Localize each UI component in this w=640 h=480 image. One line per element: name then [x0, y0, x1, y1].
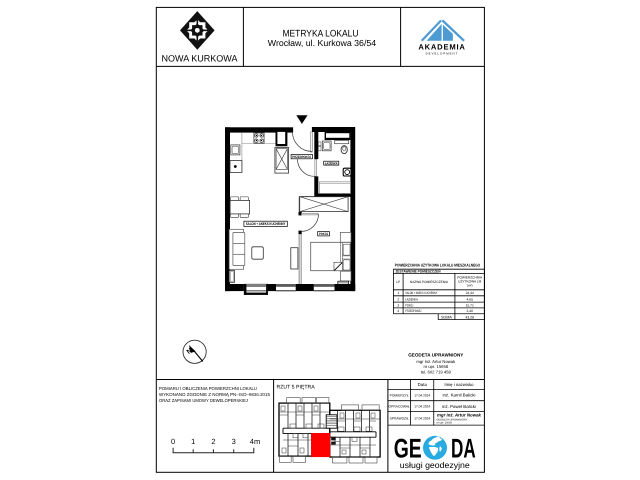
svg-text:inż. Paweł Balicki: inż. Paweł Balicki	[442, 404, 476, 409]
svg-text:nr upr. 15658: nr upr. 15658	[437, 422, 453, 425]
svg-text:tel. 602 719 458: tel. 602 719 458	[421, 369, 452, 374]
svg-text:17.04.2024: 17.04.2024	[414, 417, 430, 421]
svg-text:OPRACOWAŁ: OPRACOWAŁ	[389, 405, 410, 409]
svg-text:SALON + ANEKS KUCHENNY: SALON + ANEKS KUCHENNY	[405, 291, 438, 295]
svg-text:3,48: 3,48	[466, 309, 473, 313]
svg-text:10,71: 10,71	[466, 303, 474, 307]
svg-text:ŁAZIENKA: ŁAZIENKA	[325, 161, 338, 165]
svg-text:4: 4	[397, 309, 399, 313]
svg-text:NAZWA POMIESZCZENIA: NAZWA POMIESZCZENIA	[410, 280, 449, 284]
svg-text:POKÓJ: POKÓJ	[405, 303, 413, 307]
svg-text:DA: DA	[451, 434, 476, 464]
svg-text:RZUT 5 PIĘTRA: RZUT 5 PIĘTRA	[277, 384, 316, 390]
svg-text:2: 2	[397, 297, 399, 301]
svg-text:SALON + ANEKS KUCHENNY: SALON + ANEKS KUCHENNY	[246, 222, 286, 226]
svg-text:SUMA: SUMA	[441, 315, 452, 319]
svg-text:POMIERZYŁ: POMIERZYŁ	[390, 393, 409, 397]
svg-text:43,28: 43,28	[465, 315, 474, 319]
svg-text:GEODETA UPRAWNIONY: GEODETA UPRAWNIONY	[408, 352, 463, 357]
svg-text:NOWA KURKOWA: NOWA KURKOWA	[162, 54, 239, 64]
svg-text:POKÓJ: POKÓJ	[319, 232, 328, 236]
svg-text:4,65: 4,65	[466, 297, 473, 301]
svg-text:POMIARU I OBLICZENIA POWIERZCH: POMIARU I OBLICZENIA POWIERZCHNI LOKALU	[159, 386, 257, 391]
svg-text:inż. Kamil Balicki: inż. Kamil Balicki	[443, 393, 476, 398]
svg-text:mgr inż. Artur Nowak: mgr inż. Artur Nowak	[437, 413, 482, 418]
svg-text:SPRAWDZIŁ: SPRAWDZIŁ	[390, 417, 409, 421]
svg-text:24,44: 24,44	[466, 291, 474, 295]
svg-text:3: 3	[232, 437, 236, 446]
svg-text:Data: Data	[418, 382, 428, 387]
svg-text:1: 1	[191, 437, 195, 446]
svg-text:POWIERZCHNIA UŻYTKOWA LOKALU M: POWIERZCHNIA UŻYTKOWA LOKALU MIESZKALNEG…	[395, 263, 481, 268]
svg-text:GE: GE	[394, 434, 422, 464]
svg-text:17.04.2024: 17.04.2024	[414, 405, 430, 409]
svg-text:2: 2	[211, 437, 215, 446]
svg-text:(m²): (m²)	[467, 284, 473, 288]
svg-text:usługi geodezyjne: usługi geodezyjne	[400, 460, 470, 470]
svg-text:1: 1	[397, 291, 399, 295]
svg-text:ŁAZIENKA: ŁAZIENKA	[405, 297, 418, 301]
svg-text:0: 0	[171, 437, 175, 446]
svg-text:PRZEDPOKÓJ: PRZEDPOKÓJ	[405, 309, 421, 313]
svg-text:WYKONANO ZGODNIE Z NORMĄ PN–IS: WYKONANO ZGODNIE Z NORMĄ PN–ISO–9836:201…	[159, 392, 271, 397]
svg-text:ZESTAWIENIE POMIESZCZEŃ: ZESTAWIENIE POMIESZCZEŃ	[396, 269, 442, 273]
svg-text:DEVELOPMENT: DEVELOPMENT	[426, 52, 459, 56]
svg-text:LP: LP	[396, 280, 400, 284]
svg-text:3: 3	[397, 303, 399, 307]
svg-text:PRZEDPOKÓJ: PRZEDPOKÓJ	[292, 155, 311, 159]
svg-text:4m: 4m	[250, 437, 260, 446]
svg-text:ORAZ ZAPISAMI UMOWY DEWELOPERS: ORAZ ZAPISAMI UMOWY DEWELOPERSKIEJ	[159, 398, 248, 403]
svg-text:AKADEMIA: AKADEMIA	[418, 42, 465, 51]
svg-text:17.04.2024: 17.04.2024	[414, 393, 430, 397]
svg-text:Wrocław, ul. Kurkowa 36/54: Wrocław, ul. Kurkowa 36/54	[268, 38, 376, 48]
svg-text:Imię i nazwisko: Imię i nazwisko	[444, 382, 474, 387]
